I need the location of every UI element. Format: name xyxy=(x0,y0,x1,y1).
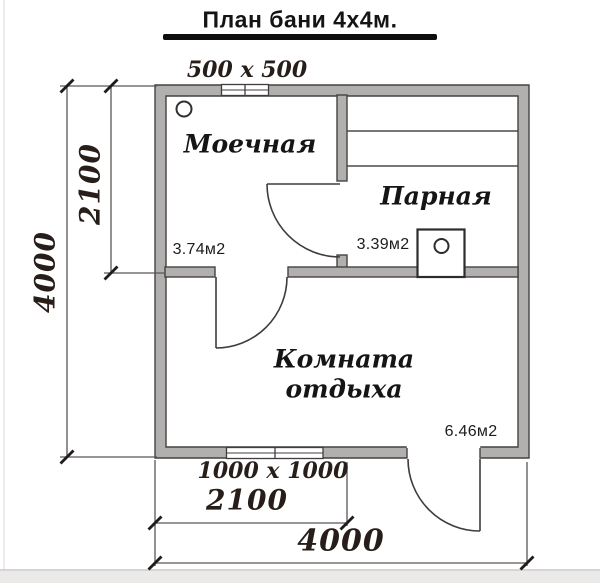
area-label-rest: 6.46м2 xyxy=(445,423,498,441)
drain-icon xyxy=(177,102,192,117)
entrance-door-opening xyxy=(407,446,480,460)
floor-plan-page: План бани 4х4м. 500 x 500 Моечная Парная… xyxy=(0,0,600,583)
steam-room-bench-lines xyxy=(347,131,518,166)
bottom-window-size-label: 1000 x 1000 xyxy=(198,458,349,484)
page-title: План бани 4х4м. xyxy=(203,7,398,34)
room-label-rest: Комната отдыха xyxy=(259,345,429,404)
top-window-size-label: 500 x 500 xyxy=(187,57,307,83)
top-window xyxy=(222,85,269,96)
bottom-dimension-total: 4000 xyxy=(297,524,385,559)
middle-wall-right-segment xyxy=(464,267,518,277)
left-dimension-total: 4000 xyxy=(29,231,62,313)
bottom-window xyxy=(227,448,324,459)
area-label-washing: 3.74м2 xyxy=(173,241,226,259)
area-label-steam: 3.39м2 xyxy=(357,236,410,254)
door-steam-room xyxy=(267,184,340,257)
door-entrance xyxy=(408,459,480,531)
door-rest-room xyxy=(216,277,287,348)
middle-wall-center-segment xyxy=(288,267,418,277)
room-label-washing: Моечная xyxy=(184,130,316,159)
middle-wall-left-segment xyxy=(165,267,215,277)
bottom-dimension-partial: 2100 xyxy=(206,484,288,517)
left-dimension-upper: 2100 xyxy=(74,143,107,225)
stove-burner-icon xyxy=(435,239,449,253)
partition-wall-washing-steam xyxy=(337,95,347,181)
page-bottom-strip xyxy=(0,571,600,583)
floor-plan-drawing xyxy=(0,0,600,583)
room-label-steam: Парная xyxy=(380,182,492,211)
title-underline-rule xyxy=(163,34,437,40)
